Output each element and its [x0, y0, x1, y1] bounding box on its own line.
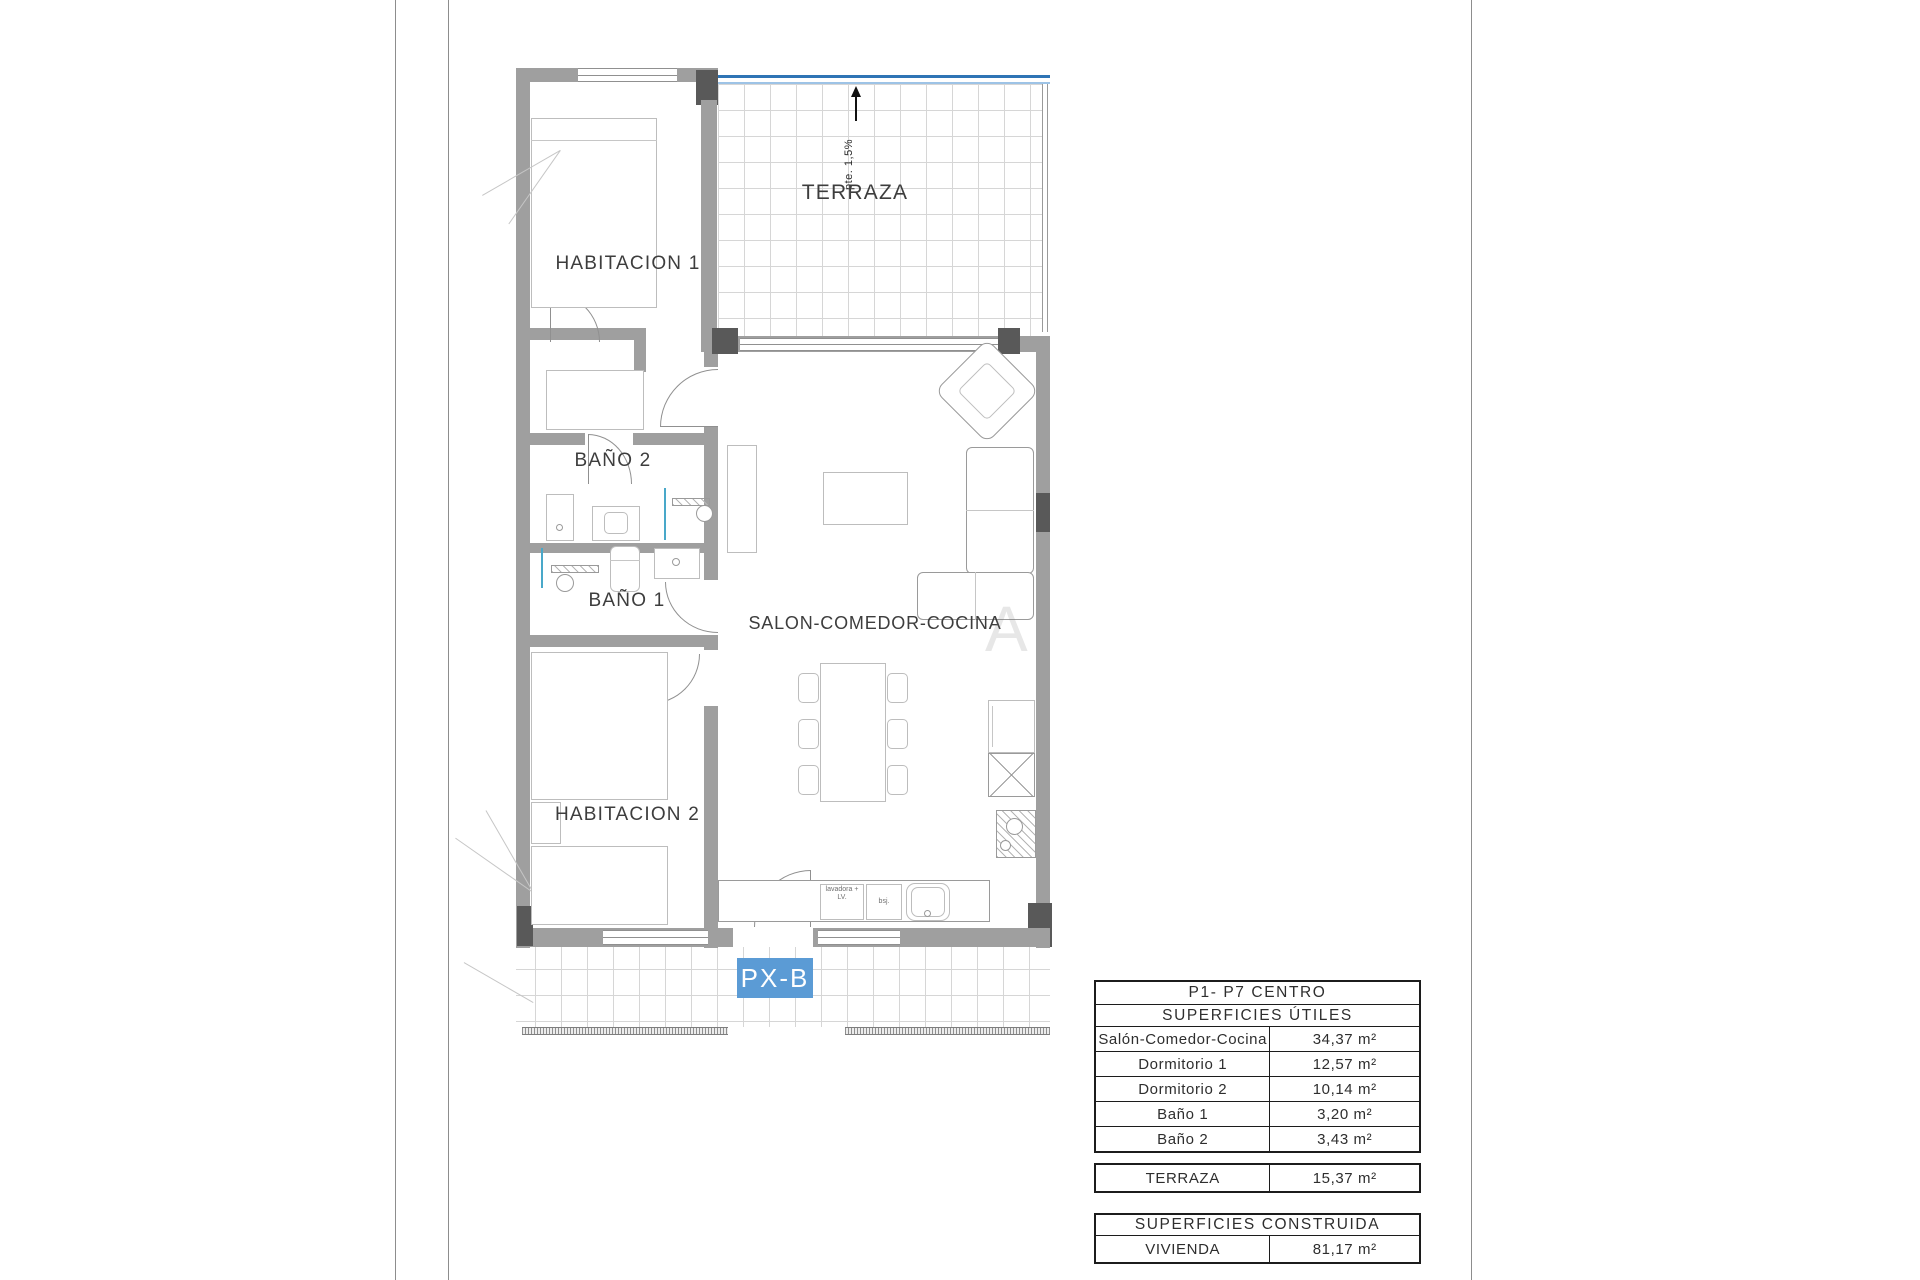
- row-value: 81,17 m²: [1270, 1236, 1419, 1262]
- label-bano2: BAÑO 2: [558, 450, 668, 472]
- label-bano1: BAÑO 1: [572, 590, 682, 612]
- row-value: 15,37 m²: [1270, 1165, 1419, 1191]
- row-name: VIVIENDA: [1096, 1236, 1270, 1262]
- bano2-shower-head: [696, 505, 713, 522]
- slope-arrow-stem: [855, 95, 857, 121]
- window-bottom-right: [818, 930, 900, 945]
- chair-r2: [887, 719, 908, 749]
- wall-bano1-bottom: [516, 635, 718, 647]
- label-terraza: TERRAZA: [795, 181, 915, 205]
- row-name: TERRAZA: [1096, 1165, 1270, 1191]
- kerb-hatch-right: [845, 1027, 1050, 1035]
- dining-table: [820, 663, 886, 802]
- row-name: Dormitorio 2: [1096, 1077, 1270, 1101]
- terrace-right-edge: [1042, 84, 1048, 332]
- small-appliance-label: bsj.: [867, 898, 901, 906]
- label-habitacion2: HABITACION 2: [535, 804, 720, 826]
- cooktop-burner-small: [1000, 840, 1011, 851]
- table-row: Dormitorio 1 12,57 m²: [1096, 1051, 1419, 1076]
- entry-gap: [733, 928, 813, 947]
- bano1-shower-screen: [541, 548, 543, 588]
- row-name: Salón-Comedor-Cocina: [1096, 1027, 1270, 1051]
- table-subtitle: SUPERFICIES ÚTILES: [1096, 1005, 1419, 1026]
- row-value: 12,57 m²: [1270, 1052, 1419, 1076]
- pillar-salon-left: [712, 328, 738, 354]
- wall-hall-stub: [634, 328, 646, 372]
- chair-l2: [798, 719, 819, 749]
- chair-l1: [798, 673, 819, 703]
- bed-hab1: [531, 118, 657, 308]
- terraza-table: TERRAZA 15,37 m²: [1094, 1163, 1421, 1193]
- bano2-boiler: [546, 494, 574, 541]
- row-name: Baño 1: [1096, 1102, 1270, 1126]
- wall-hab1-terrace: [701, 100, 717, 352]
- label-salon: SALON-COMEDOR-COCINA: [735, 613, 1015, 634]
- row-name: Baño 2: [1096, 1127, 1270, 1151]
- chair-r3: [887, 765, 908, 795]
- coffee-table: [823, 472, 908, 525]
- table-subtitle-row: SUPERFICIES ÚTILES: [1096, 1004, 1419, 1026]
- door-arc-hall: [660, 369, 718, 427]
- terrace-tiles: [718, 84, 1044, 336]
- bano2-boiler-knob: [556, 524, 563, 531]
- bano2-basin: [604, 512, 628, 534]
- bano1-rail: [551, 565, 599, 573]
- table-row: Baño 1 3,20 m²: [1096, 1101, 1419, 1126]
- sink-drain: [924, 910, 931, 917]
- fridge: [988, 700, 1035, 753]
- chair-r1: [887, 673, 908, 703]
- watermark: A: [985, 592, 1028, 666]
- row-name: Dormitorio 1: [1096, 1052, 1270, 1076]
- bed-hab1-headline: [531, 140, 657, 141]
- tv-unit: [727, 445, 757, 553]
- window-bottom-left: [603, 930, 708, 945]
- fridge-handle: [992, 706, 993, 747]
- table-row: VIVIENDA 81,17 m²: [1096, 1235, 1419, 1262]
- row-value: 34,37 m²: [1270, 1027, 1419, 1051]
- label-habitacion1: HABITACION 1: [538, 253, 718, 275]
- table-title: SUPERFICIES CONSTRUIDA: [1096, 1215, 1419, 1235]
- cooktop-burner-large: [1006, 818, 1023, 835]
- washer-label: lavadora + LV.: [821, 886, 863, 902]
- pillar-right-mid: [1036, 493, 1050, 532]
- table-title: P1- P7 CENTRO: [1096, 982, 1419, 1004]
- wall-left: [516, 68, 530, 948]
- hall-closet: [546, 370, 644, 430]
- bano1-toilet-tank: [610, 560, 640, 561]
- wall-right: [1036, 352, 1050, 948]
- table-row: Baño 2 3,43 m²: [1096, 1126, 1419, 1151]
- oven-column: [988, 753, 1035, 797]
- pillar-terrace-right: [998, 328, 1020, 354]
- bano1-toilet: [610, 546, 640, 592]
- row-value: 10,14 m²: [1270, 1077, 1419, 1101]
- table-row: TERRAZA 15,37 m²: [1096, 1165, 1419, 1191]
- sofa-cushion-line1: [966, 510, 1034, 511]
- unit-tag: PX-B: [737, 958, 813, 998]
- window-salon-terrace: [740, 338, 998, 351]
- surfaces-utiles-table: P1- P7 CENTRO SUPERFICIES ÚTILES Salón-C…: [1094, 980, 1421, 1153]
- table-title-row: SUPERFICIES CONSTRUIDA: [1096, 1215, 1419, 1235]
- bed2-hab2: [531, 846, 668, 925]
- table-row: Salón-Comedor-Cocina 34,37 m²: [1096, 1026, 1419, 1051]
- table-row: Dormitorio 2 10,14 m²: [1096, 1076, 1419, 1101]
- row-value: 3,20 m²: [1270, 1102, 1419, 1126]
- terrace-edge-line: [718, 75, 1050, 84]
- kerb-hatch-left: [522, 1027, 728, 1035]
- table-title-row: P1- P7 CENTRO: [1096, 982, 1419, 1004]
- construida-table: SUPERFICIES CONSTRUIDA VIVIENDA 81,17 m²: [1094, 1213, 1421, 1264]
- bano1-sink-drain: [672, 558, 680, 566]
- floor-plan: lavadora + LV. bsj. pte. 1,5% HABITACION…: [0, 0, 1920, 1280]
- window-hab1: [578, 68, 677, 82]
- chair-l3: [798, 765, 819, 795]
- hab2-door-gap: [704, 650, 718, 706]
- row-value: 3,43 m²: [1270, 1127, 1419, 1151]
- bed1-hab2: [531, 652, 668, 800]
- bano2-shower-screen: [664, 488, 666, 540]
